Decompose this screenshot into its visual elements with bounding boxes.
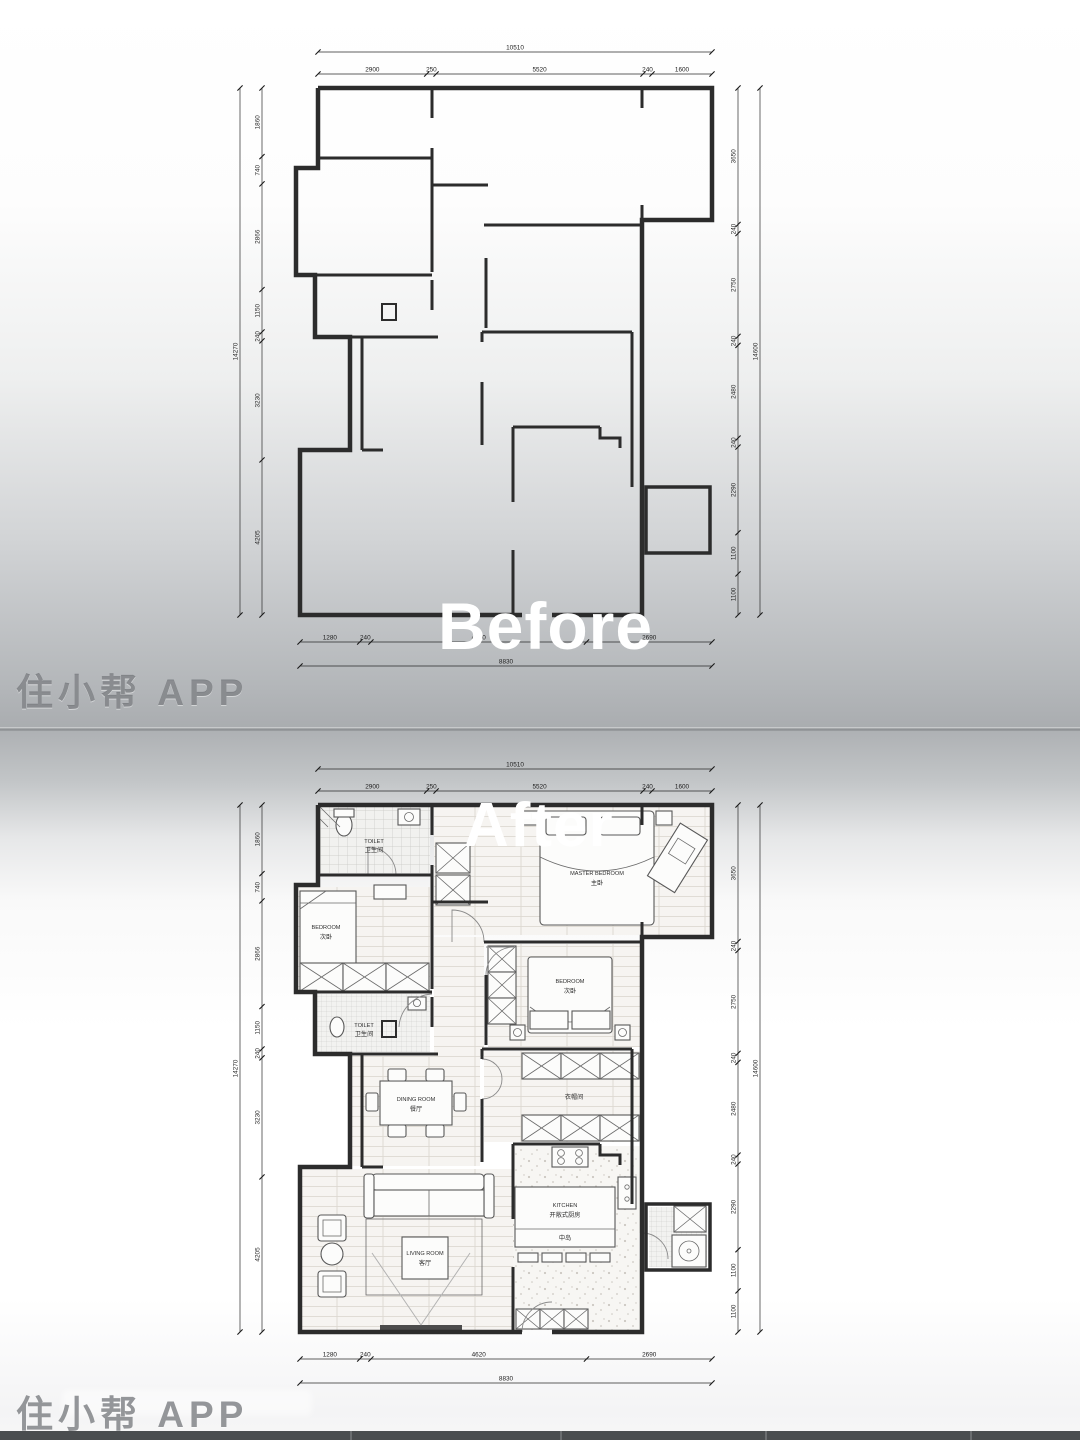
svg-text:240: 240: [255, 331, 262, 342]
svg-text:1280: 1280: [323, 1352, 338, 1359]
svg-text:开敞式厨房: 开敞式厨房: [550, 1211, 581, 1219]
svg-text:1600: 1600: [675, 784, 690, 791]
stove-icon: [552, 1147, 588, 1167]
svg-text:250: 250: [426, 67, 437, 74]
svg-text:1280: 1280: [323, 635, 338, 642]
svg-text:240: 240: [731, 1154, 738, 1165]
room-label-toilet-small: TOILET: [354, 1023, 374, 1029]
svg-text:240: 240: [731, 940, 738, 951]
svg-text:次卧: 次卧: [564, 987, 576, 995]
svg-text:2480: 2480: [731, 384, 738, 399]
room-label-dining: DINING ROOM: [397, 1097, 436, 1103]
svg-text:14600: 14600: [753, 342, 760, 360]
room-label-master: MASTER BEDROOM: [570, 871, 624, 877]
svg-text:14600: 14600: [753, 1059, 760, 1077]
svg-text:餐厅: 餐厅: [410, 1105, 422, 1113]
svg-text:2900: 2900: [365, 67, 380, 74]
sofa: [364, 1174, 494, 1218]
svg-text:8830: 8830: [499, 1376, 514, 1383]
svg-text:240: 240: [642, 784, 653, 791]
after-dim-chain-top: 29002505520240160010510: [315, 762, 714, 794]
svg-text:2866: 2866: [255, 946, 262, 961]
svg-text:1100: 1100: [731, 546, 738, 560]
svg-text:2290: 2290: [731, 1199, 738, 1214]
svg-text:4205: 4205: [255, 530, 262, 545]
svg-text:240: 240: [731, 1052, 738, 1063]
svg-text:2900: 2900: [365, 784, 380, 791]
svg-text:240: 240: [731, 223, 738, 234]
svg-text:240: 240: [642, 67, 653, 74]
svg-text:10510: 10510: [506, 45, 524, 52]
svg-text:240: 240: [255, 1048, 262, 1059]
svg-text:2690: 2690: [642, 1352, 657, 1359]
svg-text:3650: 3650: [731, 149, 738, 164]
svg-text:2866: 2866: [255, 229, 262, 244]
armchairs: [318, 1215, 346, 1297]
svg-text:2290: 2290: [731, 482, 738, 497]
app-watermark-bottom: 住小帮 APP: [16, 1384, 436, 1438]
svg-text:卫生间: 卫生间: [355, 1030, 374, 1038]
before-dim-chain-top: 29002505520240160010510: [315, 45, 714, 77]
before-overlay-label: Before: [438, 588, 653, 664]
svg-text:2750: 2750: [731, 277, 738, 292]
svg-text:250: 250: [426, 784, 437, 791]
svg-text:1100: 1100: [731, 587, 738, 601]
balcony-items: [672, 1206, 706, 1267]
room-label-island: 中岛: [559, 1234, 571, 1242]
room-label-living: LIVING ROOM: [406, 1251, 444, 1257]
svg-text:240: 240: [731, 335, 738, 346]
room-label-bedroom-mid: BEDROOM: [556, 979, 585, 985]
svg-text:1860: 1860: [255, 115, 262, 130]
svg-text:客厅: 客厅: [419, 1259, 431, 1267]
svg-text:2750: 2750: [731, 994, 738, 1009]
entry-cabinets: [516, 1309, 588, 1329]
svg-text:1860: 1860: [255, 832, 262, 847]
app-watermark-top: 住小帮 APP: [16, 662, 436, 716]
room-label-cloakroom: 衣帽间: [565, 1093, 584, 1101]
svg-text:1100: 1100: [731, 1263, 738, 1277]
svg-text:740: 740: [255, 164, 262, 175]
room-label-toilet-main: TOILET: [364, 839, 384, 845]
svg-text:740: 740: [255, 881, 262, 892]
svg-text:4205: 4205: [255, 1247, 262, 1262]
after-overlay-label: After: [464, 790, 614, 861]
svg-text:240: 240: [731, 437, 738, 448]
svg-text:5520: 5520: [532, 67, 547, 74]
svg-text:1600: 1600: [675, 67, 690, 74]
svg-text:主卧: 主卧: [591, 879, 603, 887]
svg-text:240: 240: [360, 1352, 371, 1359]
before-dim-chain-right: 36502402750240248024022901100110014600: [731, 85, 763, 617]
svg-text:卫生间: 卫生间: [365, 846, 384, 854]
svg-text:240: 240: [360, 635, 371, 642]
svg-text:3650: 3650: [731, 866, 738, 881]
svg-text:3230: 3230: [255, 1110, 262, 1125]
room-label-bedroom-left: BEDROOM: [312, 925, 341, 931]
svg-text:4620: 4620: [472, 1352, 487, 1359]
svg-text:10510: 10510: [506, 762, 524, 769]
svg-text:1150: 1150: [255, 1020, 262, 1034]
svg-text:1100: 1100: [731, 1304, 738, 1318]
svg-text:1150: 1150: [255, 303, 262, 317]
room-label-kitchen: KITCHEN: [553, 1203, 578, 1209]
after-dim-chain-bottom: 1280240462026908830: [297, 1352, 714, 1386]
svg-text:2480: 2480: [731, 1101, 738, 1116]
before-dim-chain-left: 1860740286611502403230420514270: [233, 85, 265, 617]
bottom-progress-bar: [0, 1431, 1080, 1440]
after-dim-chain-right: 36502402750240248024022901100110014600: [731, 802, 763, 1334]
svg-text:3230: 3230: [255, 393, 262, 408]
after-dim-chain-left: 1860740286611502403230420514270: [233, 802, 265, 1334]
svg-text:次卧: 次卧: [320, 933, 332, 941]
svg-text:14270: 14270: [233, 342, 240, 360]
svg-text:14270: 14270: [233, 1059, 240, 1077]
